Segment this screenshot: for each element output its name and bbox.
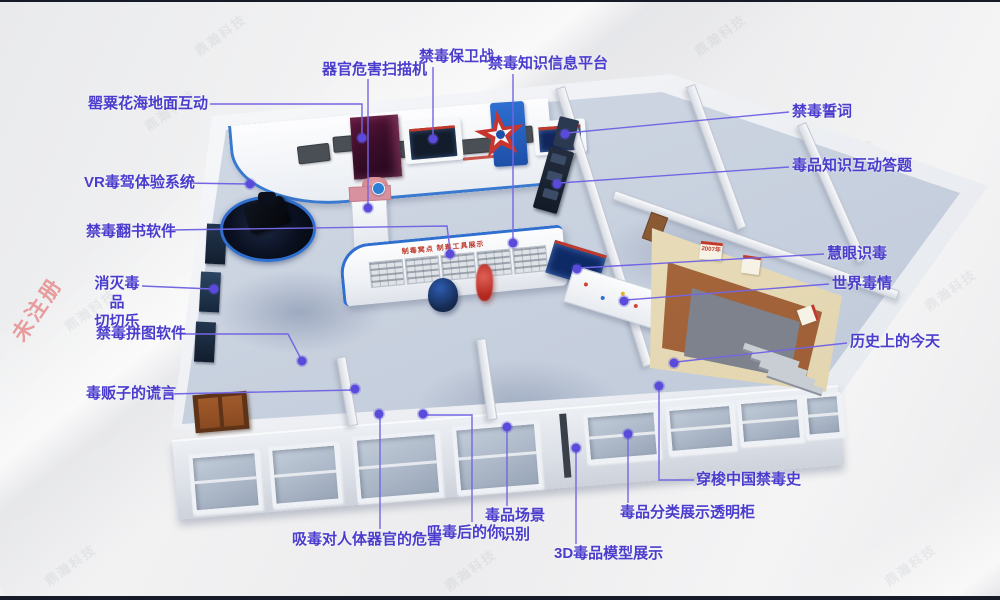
poppy-projection-screen — [350, 114, 402, 179]
window — [583, 408, 661, 464]
window — [188, 449, 263, 515]
label-quiz: 毒品知识互动答题 — [792, 157, 912, 176]
quiz-machine-screen — [542, 188, 559, 201]
wall-slogan — [463, 155, 497, 161]
history-poster-year: 2007年 — [700, 244, 723, 257]
label-dealer-lies: 毒贩子的谎言 — [86, 385, 176, 404]
wall-corner-slot — [559, 413, 571, 477]
window — [737, 395, 805, 446]
window — [452, 420, 543, 495]
map-pin — [583, 282, 588, 287]
chemical-barrel — [428, 278, 458, 312]
history-poster — [741, 255, 761, 275]
label-defense-war: 禁毒保卫战 — [419, 48, 494, 67]
star-emblem-eye — [496, 130, 505, 139]
label-model-3d: 3D毒品模型展示 — [554, 545, 663, 564]
label-classify-cabinet: 毒品分类展示透明柜 — [620, 504, 755, 523]
quiz-machine-screen — [550, 153, 567, 166]
red-model-sculpture — [476, 264, 493, 301]
label-world-drug: 世界毒情 — [832, 275, 892, 294]
map-pin — [620, 291, 625, 296]
exhibit-panel — [512, 245, 548, 274]
window — [802, 392, 843, 439]
floor-projection-icon — [372, 182, 385, 195]
label-whack: 消灭毒品 切切乐 — [88, 275, 146, 331]
label-eye-identify: 慧眼识毒 — [827, 245, 887, 264]
defense-war-panel — [402, 118, 463, 165]
exhibit-panel — [440, 252, 476, 281]
defense-war-screen — [409, 125, 458, 160]
label-oath: 禁毒誓词 — [792, 103, 852, 122]
exhibition-hall-render: { "watermark": { "tiled": "鼎瀚科技", "unreg… — [0, 0, 1000, 600]
exhibit-panel — [369, 259, 405, 288]
label-info-platform: 禁毒知识信息平台 — [488, 55, 608, 74]
window — [268, 441, 343, 508]
label-organ-harm: 吸毒对人体器官的危害 — [292, 531, 442, 550]
entrance-door — [192, 391, 249, 434]
label-history-today: 历史上的今天 — [850, 333, 940, 352]
puzzle-panel — [194, 322, 216, 363]
bottom-edge-bar — [0, 596, 1000, 600]
window — [665, 402, 737, 455]
label-organ-scanner: 器官危害扫描机 — [322, 61, 427, 80]
top-edge-bar — [0, 0, 1000, 2]
display-board — [297, 143, 331, 165]
vr-seat — [258, 192, 276, 206]
label-china-history: 穿梭中国禁毒史 — [696, 471, 801, 490]
history-poster: 2007年 — [699, 241, 723, 261]
map-pin — [600, 295, 605, 300]
whack-game-panel — [199, 272, 221, 313]
map-pin — [633, 304, 638, 309]
label-book-flip: 禁毒翻书软件 — [86, 223, 176, 242]
window — [352, 430, 443, 503]
quiz-machine-screen — [546, 170, 563, 183]
label-poppy-floor: 罂粟花海地面互动 — [88, 95, 208, 114]
label-vr-driving: VR毒驾体验系统 — [84, 174, 195, 193]
